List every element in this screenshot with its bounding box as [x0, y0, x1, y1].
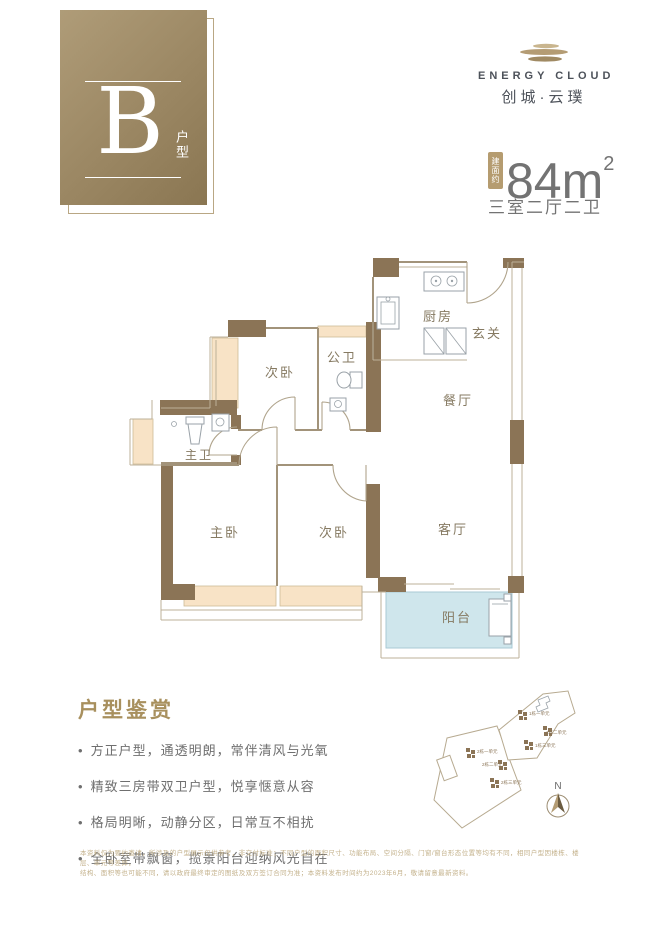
svg-text:2栋二单元: 2栋二单元	[482, 761, 503, 768]
svg-text:2栋一单元: 2栋一单元	[477, 748, 498, 755]
disclaimer: 本资料仅为要约邀请，所涉及的户型展示仅供参考，非交付标准；不同户型的面积尺寸、功…	[80, 849, 585, 879]
partitions	[161, 262, 467, 586]
disclaimer-line1: 本资料仅为要约邀请，所涉及的户型展示仅供参考，非交付标准；不同户型的面积尺寸、功…	[80, 849, 585, 869]
disclaimer-line2: 结构、面积等也可能不同，请以政府最终审定的图纸及双方签订合同为准；本资料发布时间…	[80, 869, 585, 879]
poster-page: B 户型 ENERGY CLOUD 创城·云璞 建面约 84m2 三室二厅二卫	[0, 0, 660, 934]
svg-text:2栋三单元: 2栋三单元	[501, 779, 522, 786]
highlight-item: 精致三房带双卫户型，悦享惬意从容	[78, 776, 418, 795]
svg-text:1栋三单元: 1栋三单元	[535, 742, 556, 749]
room-label-kitchen: 厨房	[423, 309, 453, 324]
room-label-dining: 餐厅	[443, 393, 473, 408]
svg-text:1栋一单元: 1栋一单元	[529, 710, 550, 717]
public-bath-fixtures	[330, 372, 362, 411]
highlight-item: 格局明晰，动静分区，日常互不相扰	[78, 812, 418, 831]
svg-text:1栋二单元: 1栋二单元	[546, 729, 567, 736]
highlights-list: 方正户型，通透明朗，常伴清风与光氧 精致三房带双卫户型，悦享惬意从容 格局明晰，…	[78, 740, 418, 867]
room-label-bedroom-top: 次卧	[265, 365, 295, 380]
room-label-bath-master: 主卫	[185, 448, 213, 462]
room-label-living: 客厅	[438, 522, 468, 537]
room-label-bedroom-second: 次卧	[319, 525, 349, 540]
outline-windows	[130, 262, 524, 620]
balcony-area	[381, 592, 519, 658]
north-label: N	[554, 781, 561, 792]
highlights-title: 户型鉴赏	[78, 694, 418, 724]
north-arrow: N	[547, 781, 569, 817]
room-label-foyer: 玄关	[472, 326, 502, 341]
room-label-bedroom-master: 主卧	[210, 525, 240, 540]
room-label-bath-public: 公卫	[327, 350, 357, 365]
room-label-balcony: 阳台	[442, 610, 472, 625]
site-plan: 2栋一单元 2栋二单元 2栋三单元 1栋一单元 1栋二单元 1栋三单元 N	[434, 691, 575, 828]
highlight-item: 方正户型，通透明朗，常伴清风与光氧	[78, 740, 418, 759]
master-bath-fixtures	[172, 414, 230, 444]
